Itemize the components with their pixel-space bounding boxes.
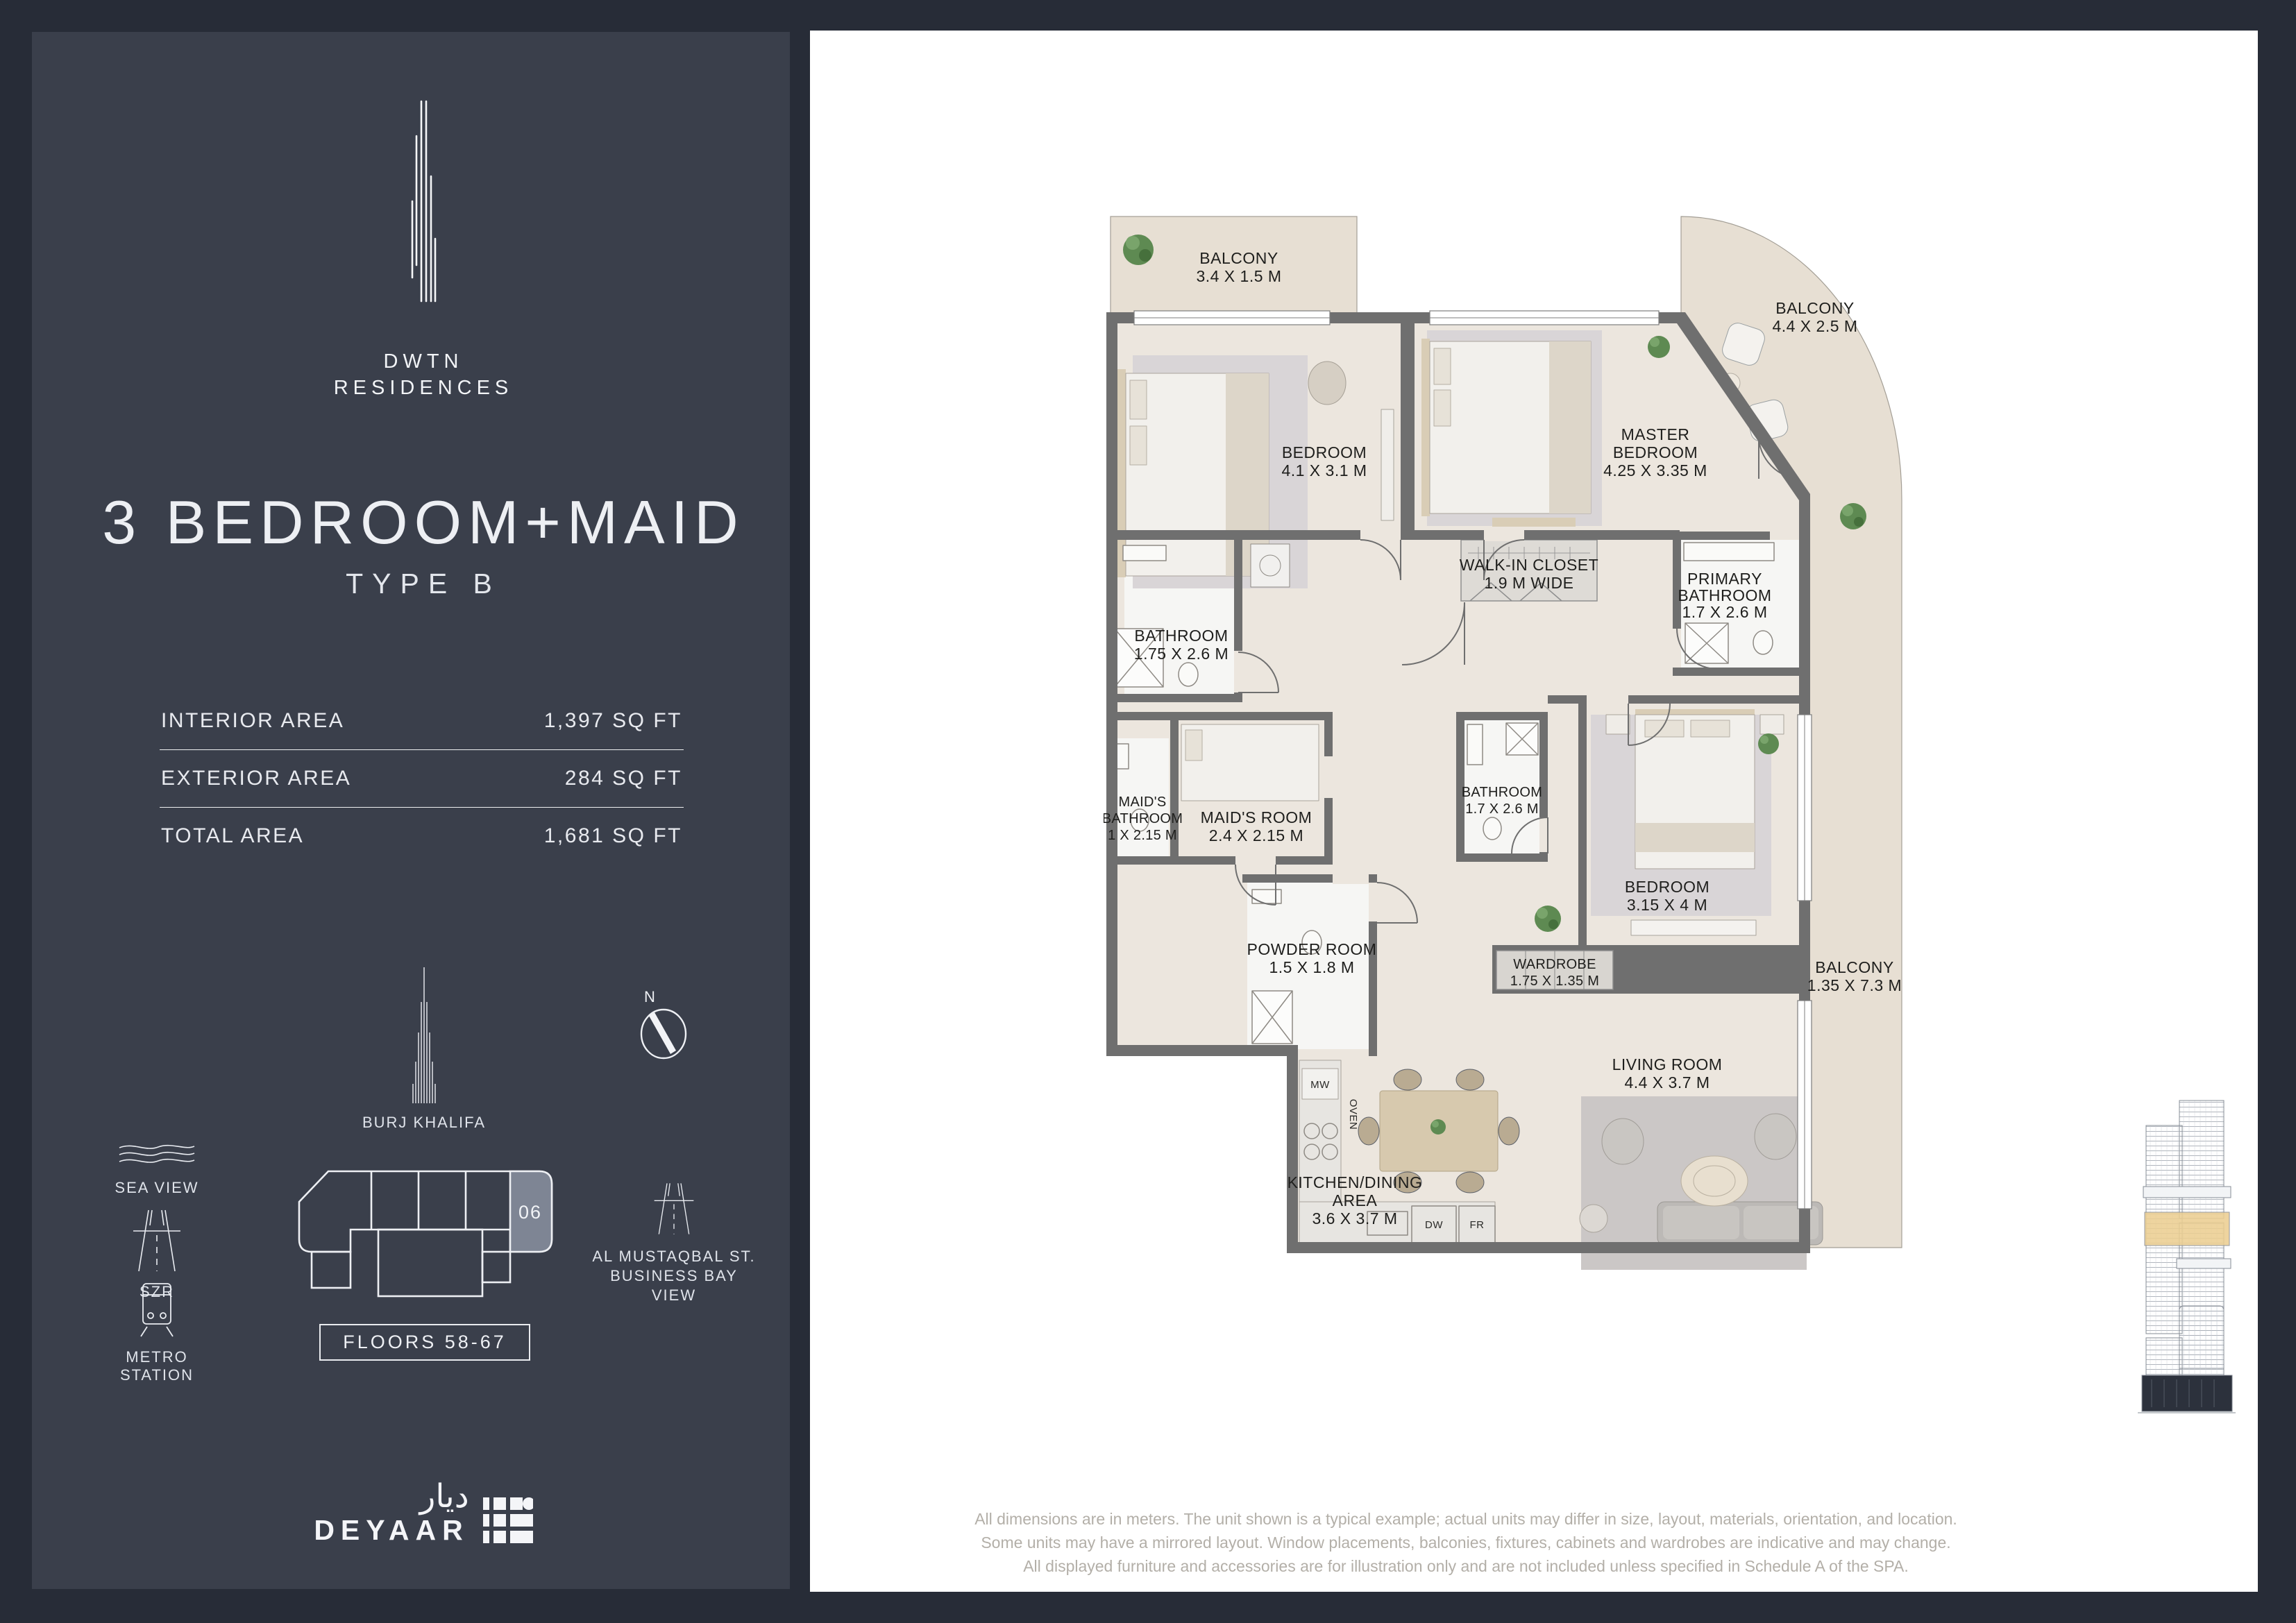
legend-sea-view: SEA VIEW	[108, 1141, 205, 1197]
room-label-balcony-top: BALCONY 3.4 X 1.5 M	[1196, 249, 1281, 285]
svg-text:WALK-IN CLOSET: WALK-IN CLOSET	[1460, 556, 1598, 574]
area-label: INTERIOR AREA	[161, 709, 344, 733]
area-value: 1,681 SQ FT	[544, 824, 682, 848]
svg-text:BEDROOM: BEDROOM	[1282, 443, 1367, 461]
street-line: VIEW	[559, 1286, 788, 1305]
compass-n-label: N	[644, 988, 655, 1005]
svg-text:BATHROOM: BATHROOM	[1134, 627, 1228, 645]
svg-text:MW: MW	[1310, 1079, 1330, 1091]
brochure-page: DWTN RESIDENCES 3 BEDROOM+MAID TYPE B IN…	[0, 0, 2296, 1623]
developer-arabic: ديار	[420, 1479, 469, 1514]
svg-text:4.4 X 2.5 M: 4.4 X 2.5 M	[1772, 317, 1857, 335]
disclaimer-line: All displayed furniture and accessories …	[810, 1554, 2122, 1578]
svg-text:AREA: AREA	[1333, 1191, 1378, 1209]
disclaimer-line: All dimensions are in meters. The unit s…	[810, 1507, 2122, 1531]
svg-text:BEDROOM: BEDROOM	[1613, 443, 1698, 461]
area-value: 284 SQ FT	[565, 767, 682, 790]
svg-text:KITCHEN/DINING: KITCHEN/DINING	[1288, 1173, 1423, 1191]
plan-sheet: BALCONY 3.4 X 1.5 M BEDROOM 4.1 X 3.1 M …	[810, 31, 2258, 1592]
legend-street-view: AL MUSTAQBAL ST. BUSINESS BAY VIEW	[559, 1181, 788, 1305]
deyaar-grid-icon	[483, 1495, 533, 1546]
unit-number-label: 06	[518, 1202, 542, 1223]
floors-58-67-band	[2145, 1212, 2229, 1246]
svg-text:FR: FR	[1470, 1219, 1485, 1231]
svg-text:1.7 X 2.6 M: 1.7 X 2.6 M	[1682, 603, 1767, 621]
floors-range-badge: FLOORS 58-67	[319, 1324, 530, 1361]
svg-text:4.1 X 3.1 M: 4.1 X 3.1 M	[1281, 461, 1367, 479]
svg-text:MASTER: MASTER	[1621, 425, 1690, 443]
dwtn-tower-icon	[57, 96, 790, 314]
svg-text:1.7 X 2.6 M: 1.7 X 2.6 M	[1465, 801, 1539, 817]
street-view-label: AL MUSTAQBAL ST. BUSINESS BAY VIEW	[559, 1247, 788, 1305]
svg-text:1.35 X 7.3 M: 1.35 X 7.3 M	[1807, 976, 1902, 994]
building-elevation	[2136, 1098, 2237, 1417]
waves-icon	[115, 1141, 199, 1170]
street-line: AL MUSTAQBAL ST.	[559, 1247, 788, 1266]
svg-text:BATHROOM: BATHROOM	[1104, 811, 1183, 826]
room-label-balcony-right: BALCONY 1.35 X 7.3 M	[1807, 958, 1902, 994]
road-icon	[646, 1181, 702, 1237]
legend-label: METRO STATION	[108, 1348, 205, 1384]
legend-label: SEA VIEW	[108, 1179, 205, 1197]
svg-text:POWDER ROOM: POWDER ROOM	[1247, 940, 1377, 958]
svg-text:LIVING ROOM: LIVING ROOM	[1612, 1055, 1723, 1073]
svg-text:3.6 X 3.7 M: 3.6 X 3.7 M	[1312, 1209, 1397, 1227]
svg-text:MAID'S: MAID'S	[1119, 794, 1167, 810]
floorplate-diagram: 06	[267, 1166, 580, 1308]
disclaimer: All dimensions are in meters. The unit s…	[810, 1507, 2122, 1578]
room-label-maids-room: MAID'S ROOM 2.4 X 2.15 M	[1201, 808, 1312, 844]
svg-text:3.15 X 4 M: 3.15 X 4 M	[1627, 896, 1707, 914]
svg-text:MAID'S ROOM: MAID'S ROOM	[1201, 808, 1312, 826]
svg-text:4.25 X 3.35 M: 4.25 X 3.35 M	[1603, 461, 1707, 479]
disclaimer-line: Some units may have a mirrored layout. W…	[810, 1531, 2122, 1554]
svg-text:1 X 2.15 M: 1 X 2.15 M	[1108, 828, 1177, 843]
room-label-bedroom-3: BEDROOM 3.15 X 4 M	[1625, 878, 1710, 914]
room-label-primary-bathroom: PRIMARY BATHROOM 1.7 X 2.6 M	[1678, 570, 1771, 621]
svg-text:1.75 X 1.35 M: 1.75 X 1.35 M	[1510, 974, 1599, 989]
room-label-bathroom-1: BATHROOM 1.75 X 2.6 M	[1134, 627, 1229, 663]
developer-logo: ديار DEYAAR	[57, 1479, 790, 1546]
burj-khalifa-icon	[400, 966, 448, 1105]
brand-name: DWTN RESIDENCES	[57, 348, 790, 401]
svg-text:BALCONY: BALCONY	[1199, 249, 1278, 267]
svg-text:4.4 X 3.7 M: 4.4 X 3.7 M	[1624, 1073, 1710, 1091]
road-icon	[129, 1207, 185, 1274]
room-label-living-room: LIVING ROOM 4.4 X 3.7 M	[1612, 1055, 1723, 1091]
svg-text:BATHROOM: BATHROOM	[1462, 785, 1542, 800]
sidebar: DWTN RESIDENCES 3 BEDROOM+MAID TYPE B IN…	[32, 32, 790, 1589]
area-row-interior: INTERIOR AREA 1,397 SQ FT	[160, 692, 684, 749]
svg-text:OVEN: OVEN	[1347, 1099, 1359, 1130]
compass-icon: N	[627, 987, 697, 1070]
room-label-balcony-curved: BALCONY 4.4 X 2.5 M	[1772, 299, 1857, 335]
room-label-bedroom-1: BEDROOM 4.1 X 3.1 M	[1281, 443, 1367, 479]
svg-text:2.4 X 2.15 M: 2.4 X 2.15 M	[1209, 826, 1303, 844]
page-title: 3 BEDROOM+MAID	[57, 487, 790, 558]
developer-latin: DEYAAR	[314, 1514, 469, 1546]
svg-text:WARDROBE: WARDROBE	[1513, 957, 1596, 972]
brand-line1: DWTN	[57, 348, 790, 375]
area-label: EXTERIOR AREA	[161, 767, 351, 790]
svg-text:1.75 X 2.6 M: 1.75 X 2.6 M	[1134, 645, 1229, 663]
svg-text:PRIMARY: PRIMARY	[1687, 570, 1762, 588]
svg-text:BEDROOM: BEDROOM	[1625, 878, 1710, 896]
svg-text:BALCONY: BALCONY	[1775, 299, 1854, 317]
street-line: BUSINESS BAY	[559, 1266, 788, 1286]
svg-text:BALCONY: BALCONY	[1815, 958, 1893, 976]
area-table: INTERIOR AREA 1,397 SQ FT EXTERIOR AREA …	[160, 692, 684, 865]
page-subtitle: TYPE B	[57, 568, 790, 600]
area-row-total: TOTAL AREA 1,681 SQ FT	[160, 807, 684, 865]
svg-text:BATHROOM: BATHROOM	[1678, 586, 1771, 604]
legend-metro-station: METRO STATION	[108, 1280, 205, 1384]
area-value: 1,397 SQ FT	[544, 709, 682, 733]
metro-icon	[131, 1280, 183, 1339]
floor-plan: BALCONY 3.4 X 1.5 M BEDROOM 4.1 X 3.1 M …	[1104, 208, 1905, 1291]
brand-line2: RESIDENCES	[57, 375, 790, 401]
svg-text:3.4 X 1.5 M: 3.4 X 1.5 M	[1196, 267, 1281, 285]
burj-khalifa-landmark: BURJ KHALIFA	[358, 966, 490, 1132]
svg-text:1.9 M WIDE: 1.9 M WIDE	[1485, 574, 1574, 592]
area-label: TOTAL AREA	[161, 824, 304, 848]
landmark-label: BURJ KHALIFA	[358, 1114, 490, 1132]
area-row-exterior: EXTERIOR AREA 284 SQ FT	[160, 749, 684, 807]
svg-text:DW: DW	[1425, 1219, 1443, 1231]
svg-text:1.5 X 1.8 M: 1.5 X 1.8 M	[1269, 958, 1354, 976]
